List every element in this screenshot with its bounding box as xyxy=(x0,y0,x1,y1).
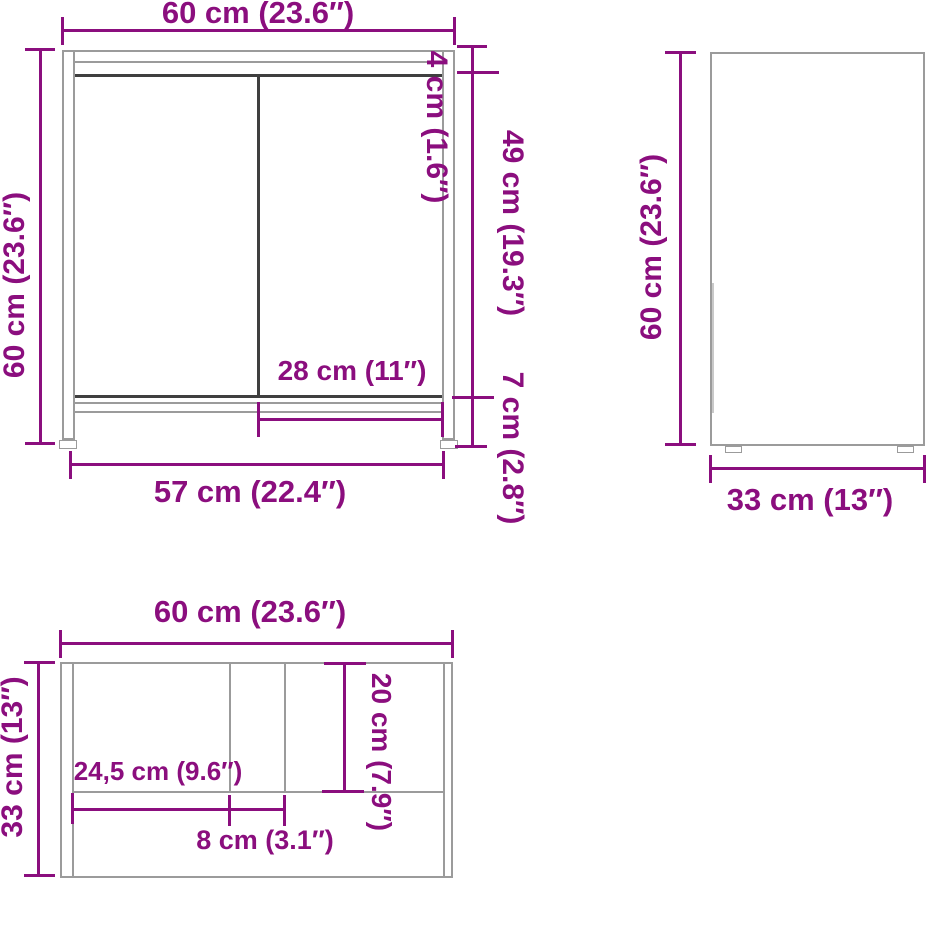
front-base-width-tick-left xyxy=(69,451,72,479)
front-width-dim-line xyxy=(62,29,456,32)
side-depth-label: 33 cm (13″) xyxy=(685,484,930,516)
front-base-width-label: 57 cm (22.4″) xyxy=(100,476,400,508)
front-height-label: 60 cm (23.6″) xyxy=(0,135,31,435)
front-door-width-tick-right xyxy=(441,402,444,437)
front-right-tick-3 xyxy=(452,396,494,399)
side-depth-tick-right xyxy=(923,455,926,483)
dimension-diagram: 60 cm (23.6″) 60 cm (23.6″) 4 cm (1.6″) … xyxy=(0,0,930,930)
side-height-tick-top xyxy=(665,51,696,54)
front-right-tick-1 xyxy=(457,45,487,48)
front-door-width-tick-left xyxy=(257,402,260,437)
front-height-tick-bottom xyxy=(25,442,55,445)
side-depth-tick-left xyxy=(709,455,712,483)
top-cutout-dim-line xyxy=(72,808,286,811)
top-width-tick-right xyxy=(451,630,454,658)
top-cutout-tick-right xyxy=(283,795,286,826)
front-door-divider xyxy=(257,74,260,397)
front-right-tick-4 xyxy=(455,445,487,448)
top-depth-tick-top xyxy=(24,661,55,664)
front-door-bottom-edge xyxy=(75,395,442,398)
front-top-panel-label: 4 cm (1.6″) xyxy=(420,32,452,222)
front-door-width-dim-line xyxy=(258,418,443,421)
top-cutout-offset-label: 24,5 cm (9.6″) xyxy=(38,758,278,784)
front-left-stile xyxy=(62,50,75,440)
side-front-foot xyxy=(725,446,742,453)
front-top-rail xyxy=(62,50,455,63)
top-depth-label: 33 cm (13″) xyxy=(0,637,28,877)
top-cutout-depth-label: 20 cm (7.9″) xyxy=(366,637,396,867)
front-width-tick-right xyxy=(453,17,456,45)
front-leg-height-label: 7 cm (2.8″) xyxy=(496,348,528,548)
front-width-tick-left xyxy=(61,17,64,45)
side-panel xyxy=(710,52,925,446)
front-right-tick-2 xyxy=(457,71,499,74)
side-height-dim-line xyxy=(679,52,682,445)
top-depth-tick-bottom xyxy=(24,874,55,877)
front-base-width-dim-line xyxy=(70,463,444,466)
front-door-width-label: 28 cm (11″) xyxy=(232,357,472,389)
top-cutout-width-label: 8 cm (3.1″) xyxy=(150,827,380,854)
front-base-width-tick-right xyxy=(442,451,445,479)
top-width-label: 60 cm (23.6″) xyxy=(100,596,400,628)
top-right-panel-line xyxy=(443,662,445,878)
side-depth-dim-line xyxy=(710,467,926,470)
top-cutout-depth-tick-bottom xyxy=(322,790,364,793)
top-cutout-line-right xyxy=(284,662,286,793)
front-width-label: 60 cm (23.6″) xyxy=(108,0,408,29)
top-cutout-tick-mid xyxy=(228,795,231,826)
side-back-foot xyxy=(897,446,914,453)
front-door-height-label: 49 cm (19.3″) xyxy=(496,93,528,353)
side-height-label: 60 cm (23.6″) xyxy=(636,97,668,397)
top-cutout-depth-tick-top xyxy=(324,662,366,665)
front-height-dim-line xyxy=(39,50,42,444)
front-height-tick-top xyxy=(25,48,55,51)
side-door-edge-line xyxy=(712,283,714,413)
top-cutout-depth-dim-line xyxy=(343,663,346,793)
side-height-tick-bottom xyxy=(665,443,696,446)
front-left-foot xyxy=(59,440,77,449)
top-width-tick-left xyxy=(59,630,62,658)
top-cutout-tick-left xyxy=(71,793,74,824)
